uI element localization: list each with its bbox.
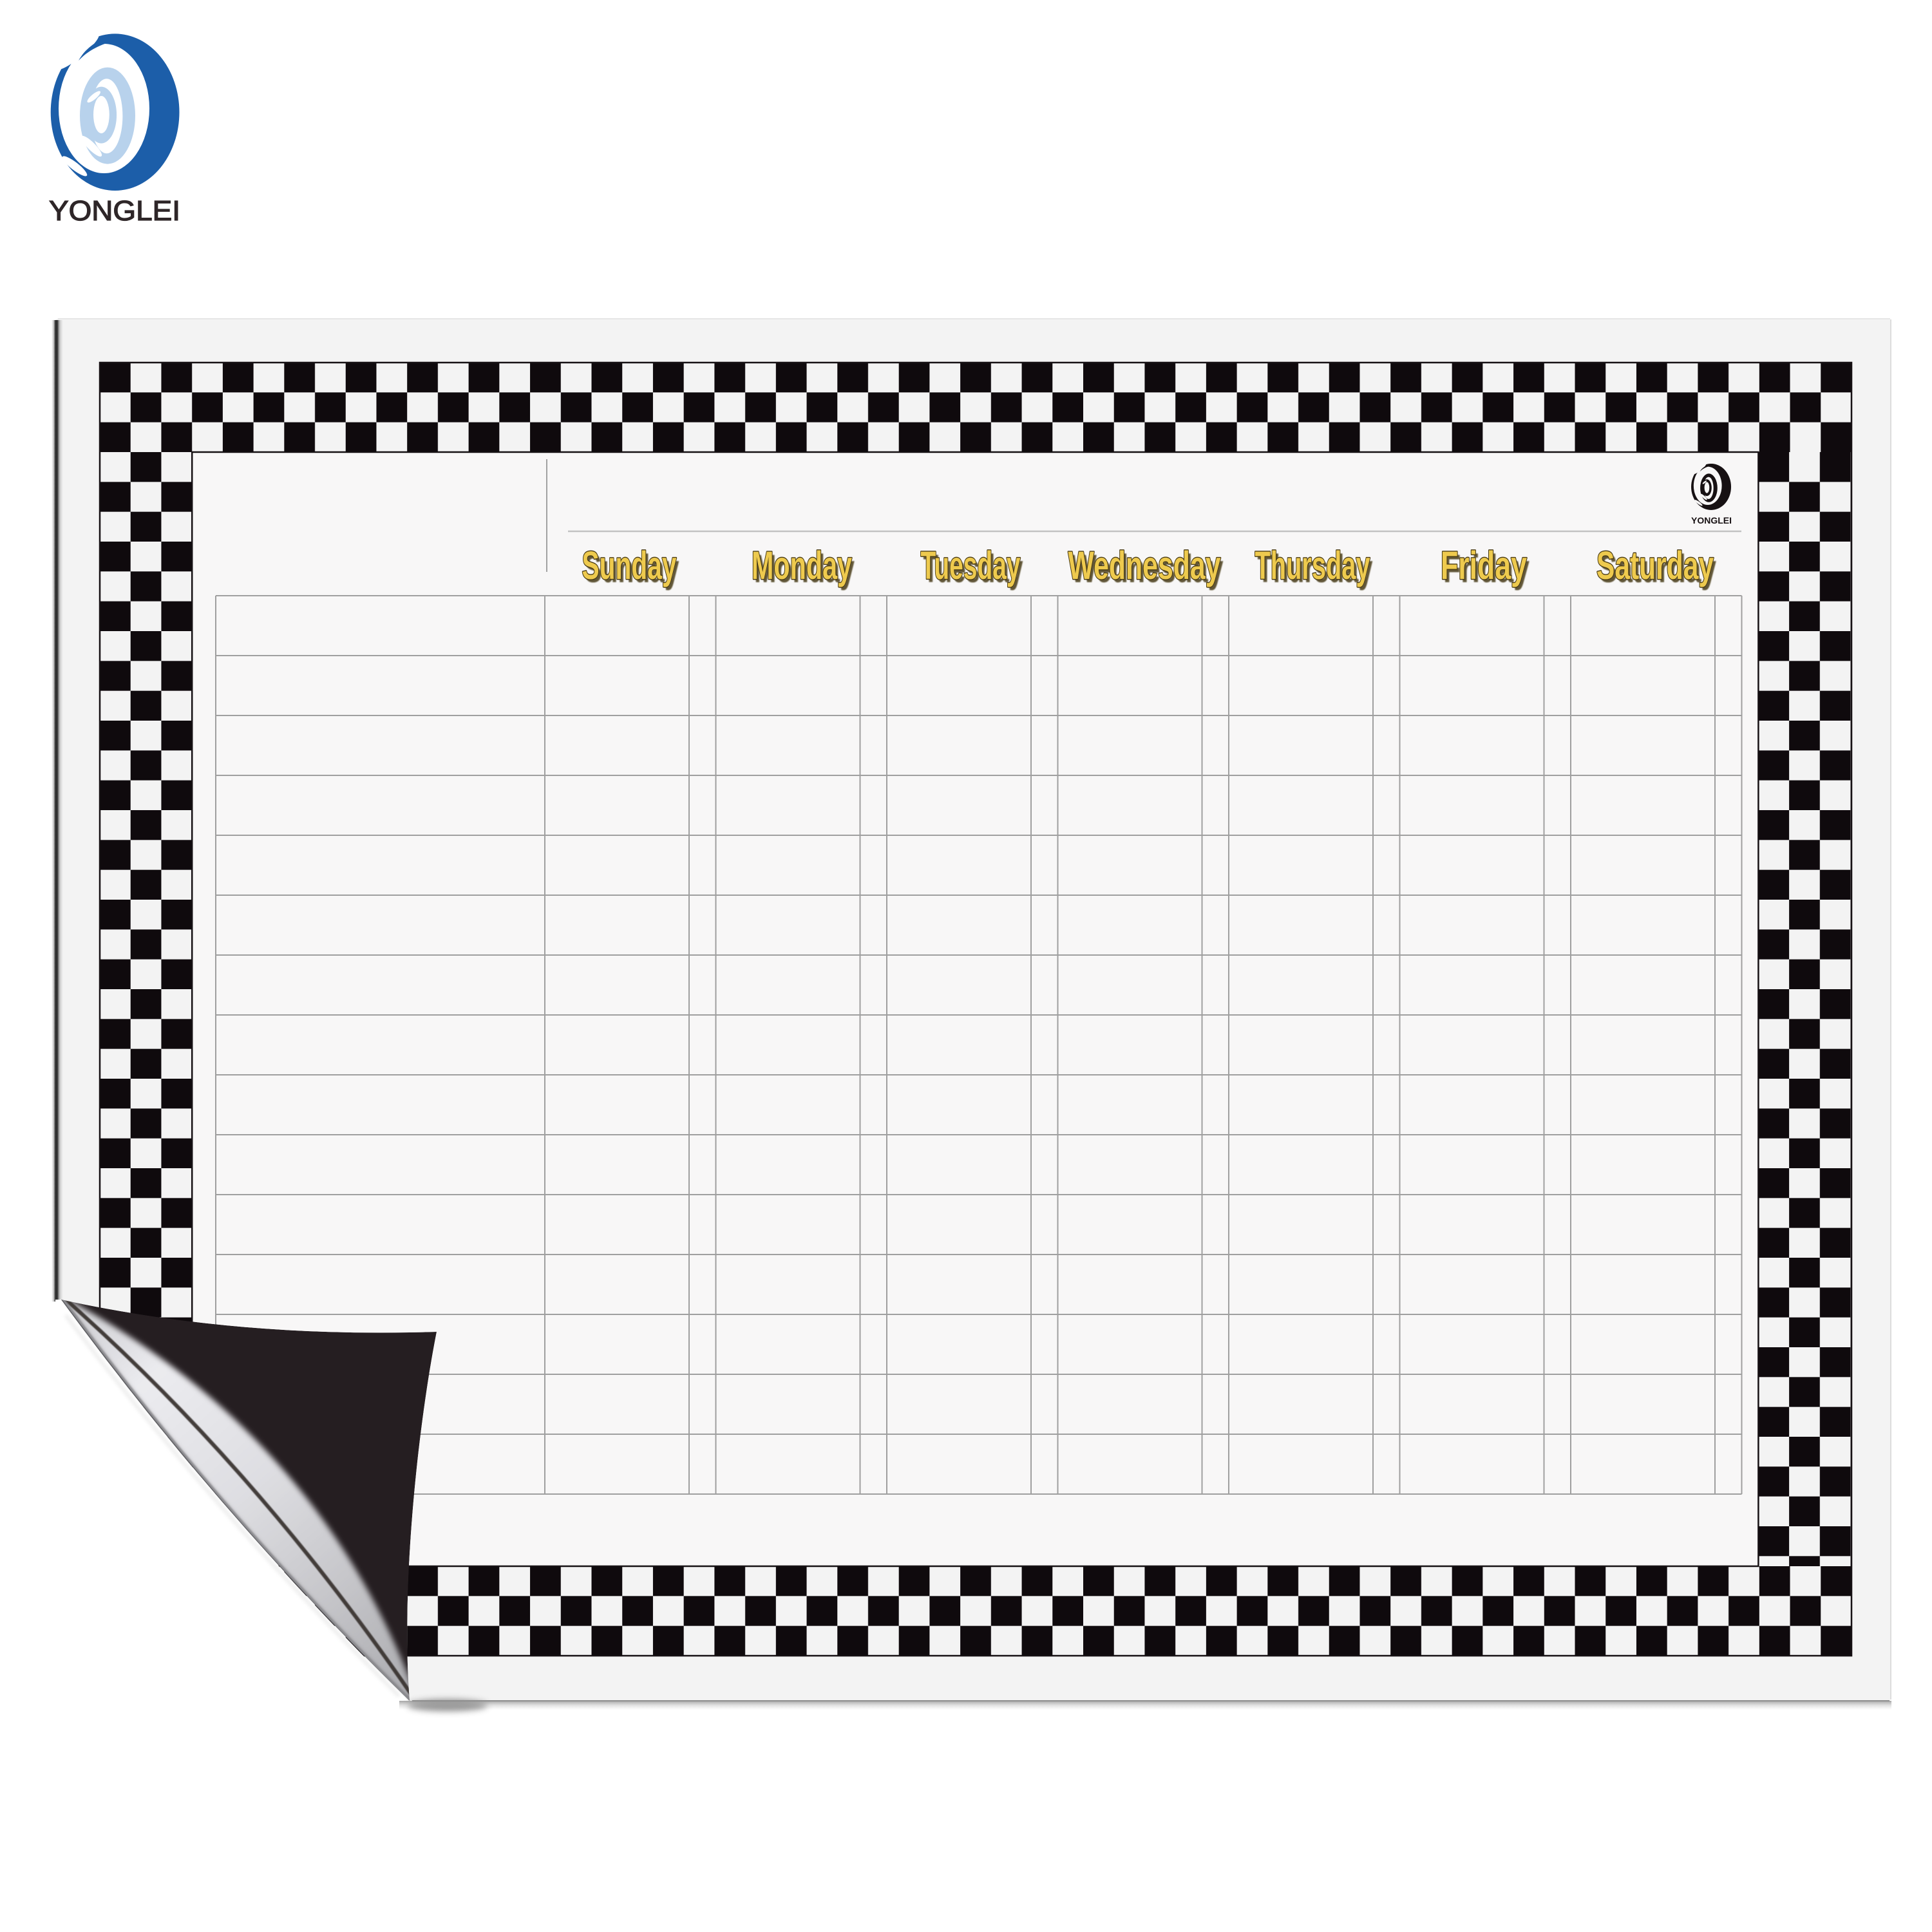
svg-text:Wednesday: Wednesday [1068,544,1221,587]
svg-text:Friday: Friday [1441,544,1527,587]
svg-text:YONGLEI: YONGLEI [1691,515,1732,526]
svg-text:Monday: Monday [752,544,852,587]
svg-text:Sunday: Sunday [582,544,677,587]
svg-text:YONGLEI: YONGLEI [49,195,180,227]
svg-text:Tuesday: Tuesday [921,544,1021,587]
svg-text:Thursday: Thursday [1255,544,1370,587]
svg-text:Saturday: Saturday [1596,544,1714,587]
